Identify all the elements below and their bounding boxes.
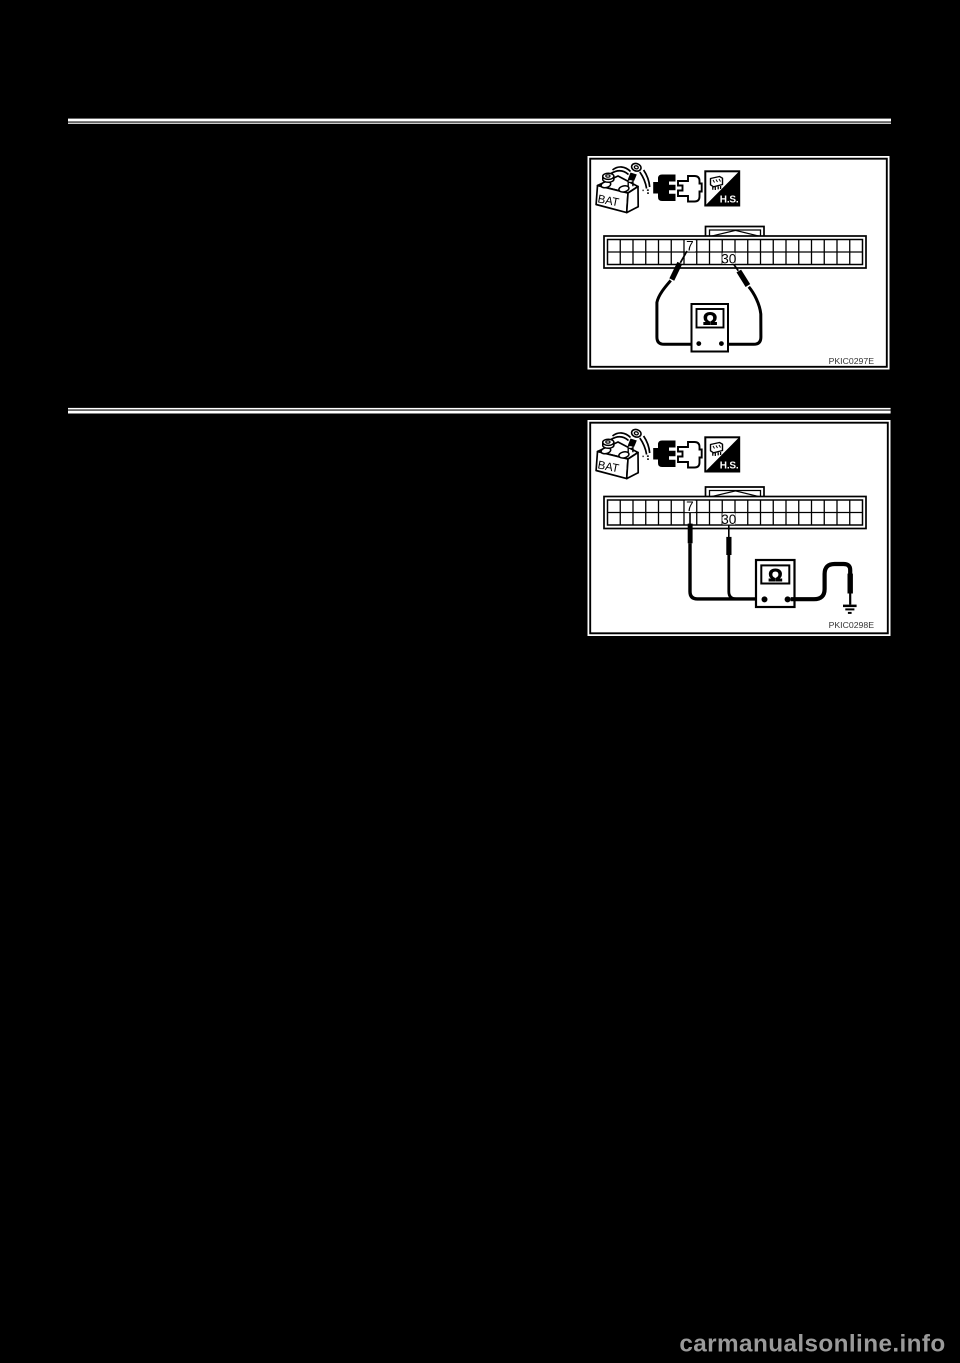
svg-text:7: 7	[686, 238, 694, 253]
svg-text:PKIC0298E: PKIC0298E	[829, 620, 875, 630]
svg-text:H.S.: H.S.	[720, 461, 739, 472]
svg-text:Ω: Ω	[703, 309, 717, 329]
svg-text:7: 7	[686, 499, 694, 514]
svg-text:PKIC0297E: PKIC0297E	[829, 356, 875, 366]
svg-text:H.S.: H.S.	[720, 195, 739, 206]
svg-text:Ω: Ω	[768, 565, 782, 585]
svg-text:carmanualsonline.info: carmanualsonline.info	[679, 1330, 945, 1357]
